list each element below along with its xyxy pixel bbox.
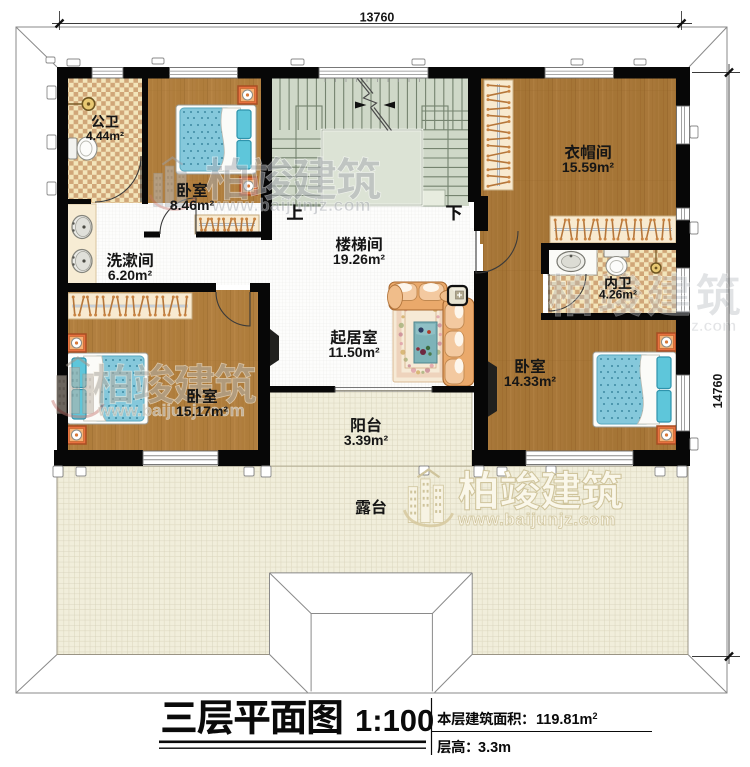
svg-text:4.26m²: 4.26m² <box>599 288 637 302</box>
svg-text:11.50m²: 11.50m² <box>328 344 380 360</box>
svg-text:14.33m²: 14.33m² <box>504 373 556 389</box>
svg-text:4.44m²: 4.44m² <box>86 129 124 143</box>
svg-text:6.20m²: 6.20m² <box>108 267 153 283</box>
svg-text:www.baijunjz.com: www.baijunjz.com <box>457 510 616 529</box>
svg-text:119.81m2: 119.81m2 <box>536 711 597 728</box>
svg-text:13760: 13760 <box>360 11 395 25</box>
svg-text:8.46m²: 8.46m² <box>170 197 215 213</box>
svg-text:15.17m²: 15.17m² <box>176 403 228 419</box>
svg-text:www.baijunjz.com: www.baijunjz.com <box>211 195 371 215</box>
svg-text:3.3m: 3.3m <box>478 740 511 756</box>
svg-text:1:100: 1:100 <box>355 703 434 738</box>
svg-text:15.59m²: 15.59m² <box>562 159 614 175</box>
svg-text:3.39m²: 3.39m² <box>344 432 389 448</box>
svg-text:z.com: z.com <box>691 318 736 335</box>
svg-text:19.26m²: 19.26m² <box>333 251 385 267</box>
svg-text:14760: 14760 <box>711 374 725 409</box>
